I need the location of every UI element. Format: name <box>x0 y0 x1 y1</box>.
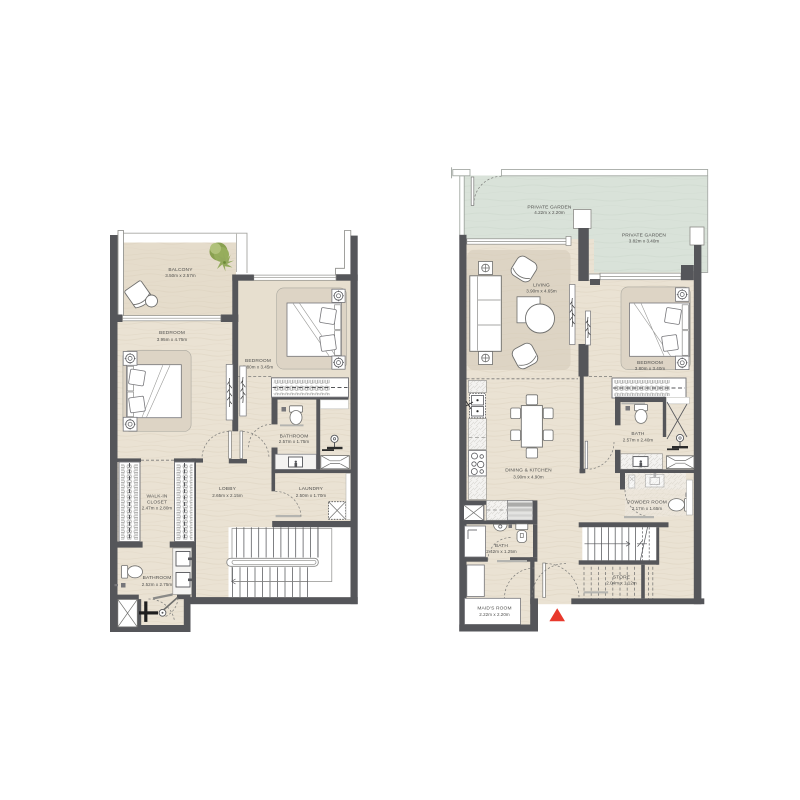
svg-text:2.17m x 1.65m: 2.17m x 1.65m <box>632 506 663 511</box>
svg-text:2.57m x 1.75m: 2.57m x 1.75m <box>279 439 310 444</box>
svg-text:2.04m x 1.12m: 2.04m x 1.12m <box>606 581 637 586</box>
svg-text:BATH: BATH <box>495 543 509 549</box>
svg-text:3.80m x 3.45m: 3.80m x 3.45m <box>243 364 274 369</box>
svg-text:BATH: BATH <box>631 431 645 437</box>
svg-text:3.80m x 3.40m: 3.80m x 3.40m <box>635 366 666 371</box>
svg-text:STORE: STORE <box>613 574 631 580</box>
svg-text:3.50m x 2.57m: 3.50m x 2.57m <box>165 273 196 278</box>
svg-text:BATHROOM: BATHROOM <box>143 575 172 581</box>
svg-text:2.47m x 2.80m: 2.47m x 2.80m <box>142 506 173 511</box>
svg-text:WALK-IN: WALK-IN <box>146 494 167 500</box>
svg-text:MAID'S ROOM: MAID'S ROOM <box>477 605 511 611</box>
svg-text:3.90m x 4.65m: 3.90m x 4.65m <box>526 288 557 293</box>
svg-text:2.52m x 2.75m: 2.52m x 2.75m <box>142 582 173 587</box>
svg-text:2.50m x 1.70m: 2.50m x 1.70m <box>296 493 327 498</box>
svg-text:DINING & KITCHEN: DINING & KITCHEN <box>505 468 552 474</box>
svg-text:2.65m x 2.15m: 2.65m x 2.15m <box>212 493 243 498</box>
svg-text:POWDER ROOM: POWDER ROOM <box>627 500 667 506</box>
svg-text:BEDROOM: BEDROOM <box>245 358 271 364</box>
svg-text:3.82m x 3.40m: 3.82m x 3.40m <box>629 239 660 244</box>
svg-text:LAUNDRY: LAUNDRY <box>299 486 324 492</box>
svg-text:2.57m x 2.40m: 2.57m x 2.40m <box>623 437 654 442</box>
svg-text:BALCONY: BALCONY <box>168 267 193 273</box>
svg-text:2.42m x 1.25m: 2.42m x 1.25m <box>486 549 517 554</box>
svg-text:4.22m x 2.20m: 4.22m x 2.20m <box>534 210 565 215</box>
svg-text:3.90m x 4.90m: 3.90m x 4.90m <box>513 475 544 480</box>
svg-text:LOBBY: LOBBY <box>219 486 237 492</box>
svg-text:BEDROOM: BEDROOM <box>159 330 185 336</box>
svg-text:3.95m x 4.75m: 3.95m x 4.75m <box>157 337 188 342</box>
svg-text:2.22m x 2.20m: 2.22m x 2.20m <box>479 612 510 617</box>
